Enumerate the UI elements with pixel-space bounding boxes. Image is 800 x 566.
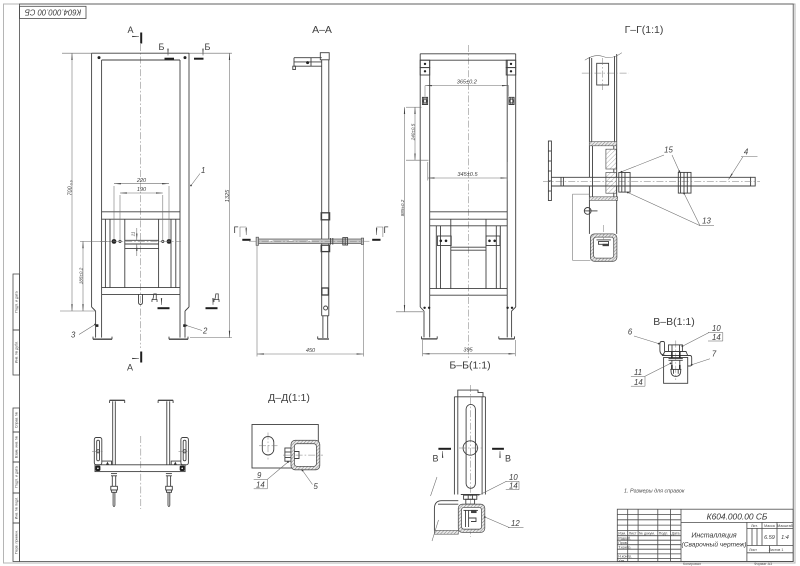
svg-text:Листов 1: Листов 1 [769, 548, 784, 552]
svg-text:Пров.: Пров. [618, 541, 628, 545]
svg-text:Г–Г(1:1): Г–Г(1:1) [625, 24, 664, 36]
svg-text:4: 4 [744, 148, 749, 157]
svg-text:345±0.5: 345±0.5 [457, 172, 478, 178]
svg-text:В: В [505, 454, 511, 464]
svg-text:14: 14 [256, 480, 265, 489]
svg-text:9: 9 [257, 471, 262, 480]
svg-text:А: А [127, 363, 133, 373]
svg-text:Д–Д(1:1): Д–Д(1:1) [268, 392, 310, 404]
svg-text:Масштаб: Масштаб [777, 524, 792, 528]
svg-text:2: 2 [202, 327, 208, 336]
svg-text:Взам. инв. №: Взам. инв. № [15, 436, 19, 458]
svg-text:Перв. примен.: Перв. примен. [15, 530, 19, 554]
svg-text:Г: Г [384, 225, 389, 235]
svg-text:Г: Г [234, 225, 239, 235]
svg-text:11: 11 [131, 231, 136, 236]
svg-text:Подп. и дата: Подп. и дата [15, 466, 19, 487]
svg-text:К604.000.00 СБ: К604.000.00 СБ [707, 512, 768, 522]
svg-text:14: 14 [712, 333, 721, 342]
svg-text:5: 5 [314, 482, 319, 491]
svg-text:Утв.: Утв. [618, 559, 625, 563]
svg-text:А: А [128, 25, 134, 35]
svg-text:Копировал: Копировал [683, 562, 701, 566]
svg-text:6: 6 [628, 328, 633, 337]
svg-text:В: В [433, 454, 439, 464]
svg-text:Инсталляция: Инсталляция [691, 533, 736, 540]
svg-text:3: 3 [71, 331, 76, 340]
svg-text:В–В(1:1): В–В(1:1) [653, 316, 694, 328]
svg-text:Масса: Масса [764, 524, 775, 528]
svg-text:1:4: 1:4 [781, 535, 789, 541]
svg-text:Разраб.: Разраб. [618, 536, 631, 540]
svg-text:7: 7 [712, 350, 717, 359]
svg-text:220: 220 [136, 178, 147, 184]
svg-text:365±0.2: 365±0.2 [457, 79, 478, 85]
svg-text:Д: Д [152, 292, 158, 302]
svg-text:11: 11 [634, 368, 642, 377]
svg-text:450: 450 [306, 348, 316, 354]
svg-text:Подп. и дата: Подп. и дата [15, 291, 19, 312]
svg-text:Н.контр.: Н.контр. [618, 555, 632, 559]
svg-text:Б–Б(1:1): Б–Б(1:1) [449, 360, 490, 372]
svg-text:1. Размеры для справок: 1. Размеры для справок [624, 489, 685, 495]
svg-text:1: 1 [201, 166, 205, 175]
svg-text:10: 10 [712, 324, 721, 333]
svg-text:Лист: Лист [749, 548, 757, 552]
svg-text:Лист: Лист [629, 532, 637, 536]
svg-text:15: 15 [664, 146, 673, 155]
svg-text:12: 12 [511, 519, 520, 528]
svg-text:14: 14 [509, 482, 518, 491]
svg-text:Инв. № дубл.: Инв. № дубл. [15, 341, 19, 363]
svg-text:Б: Б [159, 42, 165, 52]
svg-text:395: 395 [463, 347, 473, 353]
svg-text:Лит.: Лит. [751, 524, 758, 528]
svg-text:190: 190 [137, 187, 147, 193]
svg-text:(Сварочный чертеж): (Сварочный чертеж) [682, 541, 747, 549]
svg-text:№ докум.: № докум. [639, 532, 655, 536]
svg-text:Дата: Дата [672, 532, 680, 536]
svg-text:Б: Б [205, 42, 211, 52]
svg-text:185±0.2: 185±0.2 [78, 267, 83, 284]
svg-text:1325: 1325 [225, 189, 231, 202]
svg-text:240±0.5: 240±0.5 [411, 123, 416, 141]
svg-text:Формат А3: Формат А3 [754, 562, 772, 566]
svg-text:14: 14 [634, 378, 643, 387]
svg-text:Изм.: Изм. [618, 532, 626, 536]
svg-text:Д: Д [214, 292, 220, 302]
svg-text:Инв. № подл.: Инв. № подл. [15, 497, 19, 519]
svg-text:А–А: А–А [312, 24, 332, 36]
svg-text:Подп.: Подп. [659, 532, 669, 536]
svg-text:6.59: 6.59 [764, 535, 775, 541]
svg-text:885±0.2: 885±0.2 [400, 199, 405, 216]
svg-text:К604.000.00 СБ: К604.000.00 СБ [25, 7, 82, 16]
svg-text:Справ. №: Справ. № [15, 412, 19, 428]
svg-text:13: 13 [702, 217, 711, 226]
svg-text:Т.контр.: Т.контр. [618, 545, 631, 549]
